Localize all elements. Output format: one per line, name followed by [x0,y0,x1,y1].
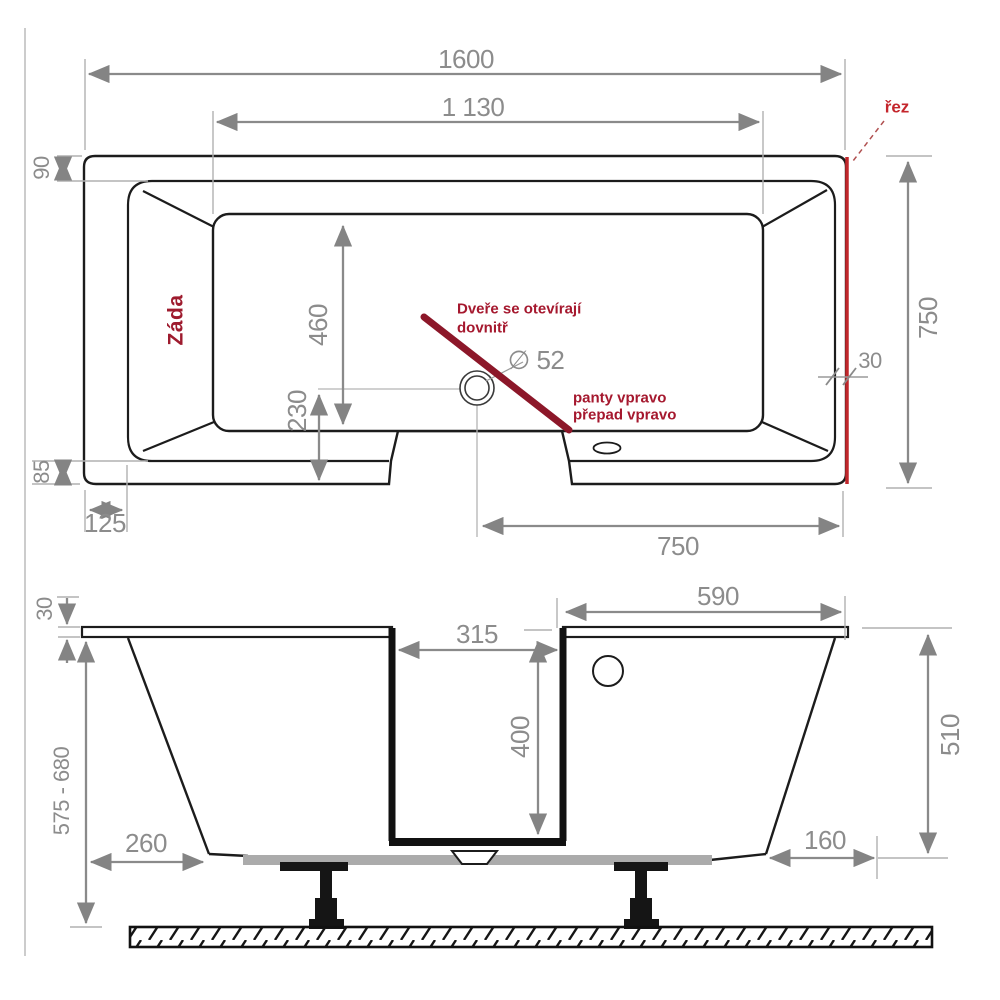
dim-top-right-length: 590 [697,583,739,609]
dim-right-width: 750 [915,297,941,339]
dim-rim-top: 90 [31,156,53,179]
rim-bar-right [563,627,848,637]
rim-bar-left [82,627,392,637]
hinge-note-line1: panty vpravo [573,391,666,406]
front-view-dimensions [57,596,952,927]
dim-drain-diameter: ∅ 52 [508,347,565,373]
overflow-hole-icon [593,656,623,686]
dim-drain-offset: 230 [284,390,310,432]
door-note-line2: dovnitř [457,321,508,336]
adjustable-foot-right [614,862,668,929]
section-label: řez [885,99,910,116]
tub-body-outline [128,638,835,860]
dim-overall-length: 1600 [438,46,494,72]
hinge-note-line2: přepad vpravo [573,408,676,423]
dim-left-inset: 260 [125,830,167,856]
door-note-line1: Dveře se otevírají [457,302,581,317]
dim-right-height: 510 [937,714,963,756]
dim-door-depth: 400 [507,716,533,758]
dim-corner-inset: 125 [84,510,126,536]
bathtub-technical-drawing: 1600 1 130 90 85 125 460 230 ∅ 52 750 75… [0,0,1000,1000]
dim-wall-thickness: 30 [858,350,881,372]
adjustable-foot-left [280,862,348,929]
drain-icon [460,371,494,405]
front-view [57,596,952,947]
dim-rim-bottom: 85 [31,460,53,483]
dim-bottom-length: 750 [657,533,699,559]
floor-hatch [130,927,932,947]
dim-height-range: 575 - 680 [51,747,73,835]
dim-inner-length: 1 130 [442,94,505,120]
section-leader-line [853,121,884,161]
overflow-slot-icon [594,443,621,454]
dim-door-width: 315 [456,621,498,647]
door-cutout [389,628,566,842]
backrest-label: Záda [166,294,187,345]
dim-rim-thickness: 30 [34,597,56,620]
dim-right-inset: 160 [804,827,846,853]
dim-inner-width: 460 [305,304,331,346]
